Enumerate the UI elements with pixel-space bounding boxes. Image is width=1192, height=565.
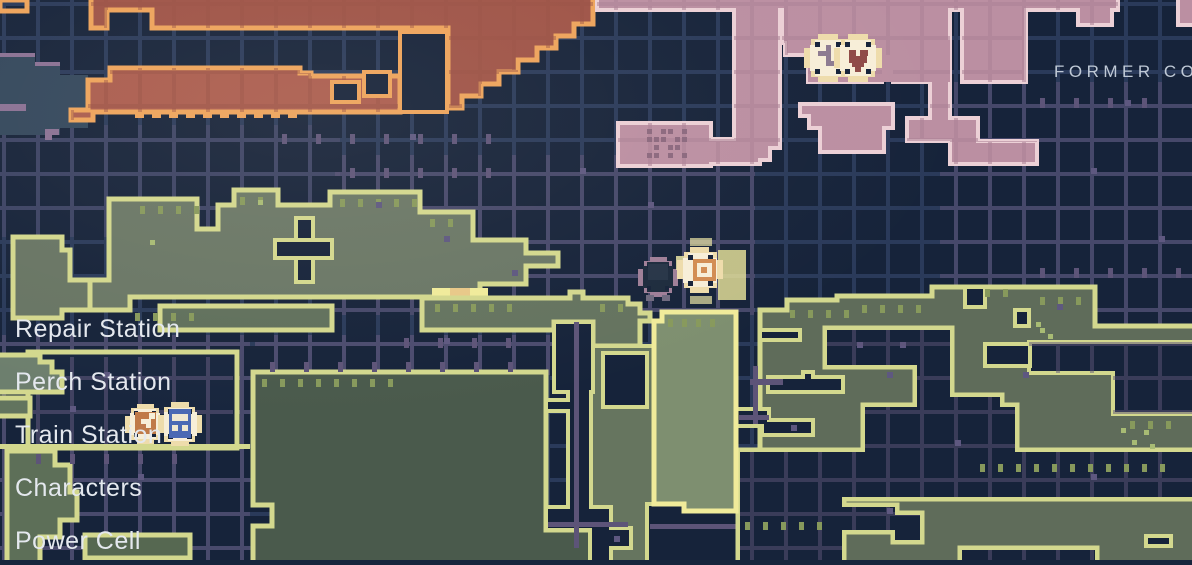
svg-text:FORMER CO: FORMER CO bbox=[1054, 62, 1192, 81]
svg-text:Repair Station: Repair Station bbox=[15, 315, 180, 343]
svg-text:Perch Station: Perch Station bbox=[15, 368, 172, 396]
svg-text:Power Cell: Power Cell bbox=[15, 527, 141, 555]
svg-text:Characters: Characters bbox=[15, 474, 142, 502]
svg-text:Train Station: Train Station bbox=[15, 421, 162, 449]
